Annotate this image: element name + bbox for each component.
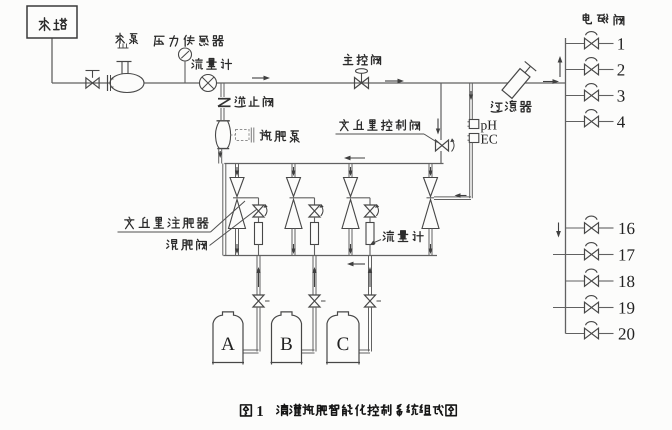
svg-text:20: 20 <box>618 324 635 343</box>
svg-text:1: 1 <box>256 404 264 420</box>
svg-text:2: 2 <box>617 60 626 79</box>
svg-text:4: 4 <box>617 112 626 131</box>
svg-text:1: 1 <box>617 34 626 53</box>
svg-text:EC: EC <box>481 132 498 147</box>
svg-text:3: 3 <box>617 86 626 105</box>
svg-text:17: 17 <box>618 245 636 264</box>
svg-text:16: 16 <box>618 219 635 238</box>
svg-text:A: A <box>221 334 235 355</box>
svg-text:pH: pH <box>481 118 498 133</box>
svg-text:19: 19 <box>618 298 635 317</box>
svg-text:18: 18 <box>618 272 635 291</box>
svg-text:B: B <box>280 334 293 355</box>
svg-text:C: C <box>337 334 350 355</box>
